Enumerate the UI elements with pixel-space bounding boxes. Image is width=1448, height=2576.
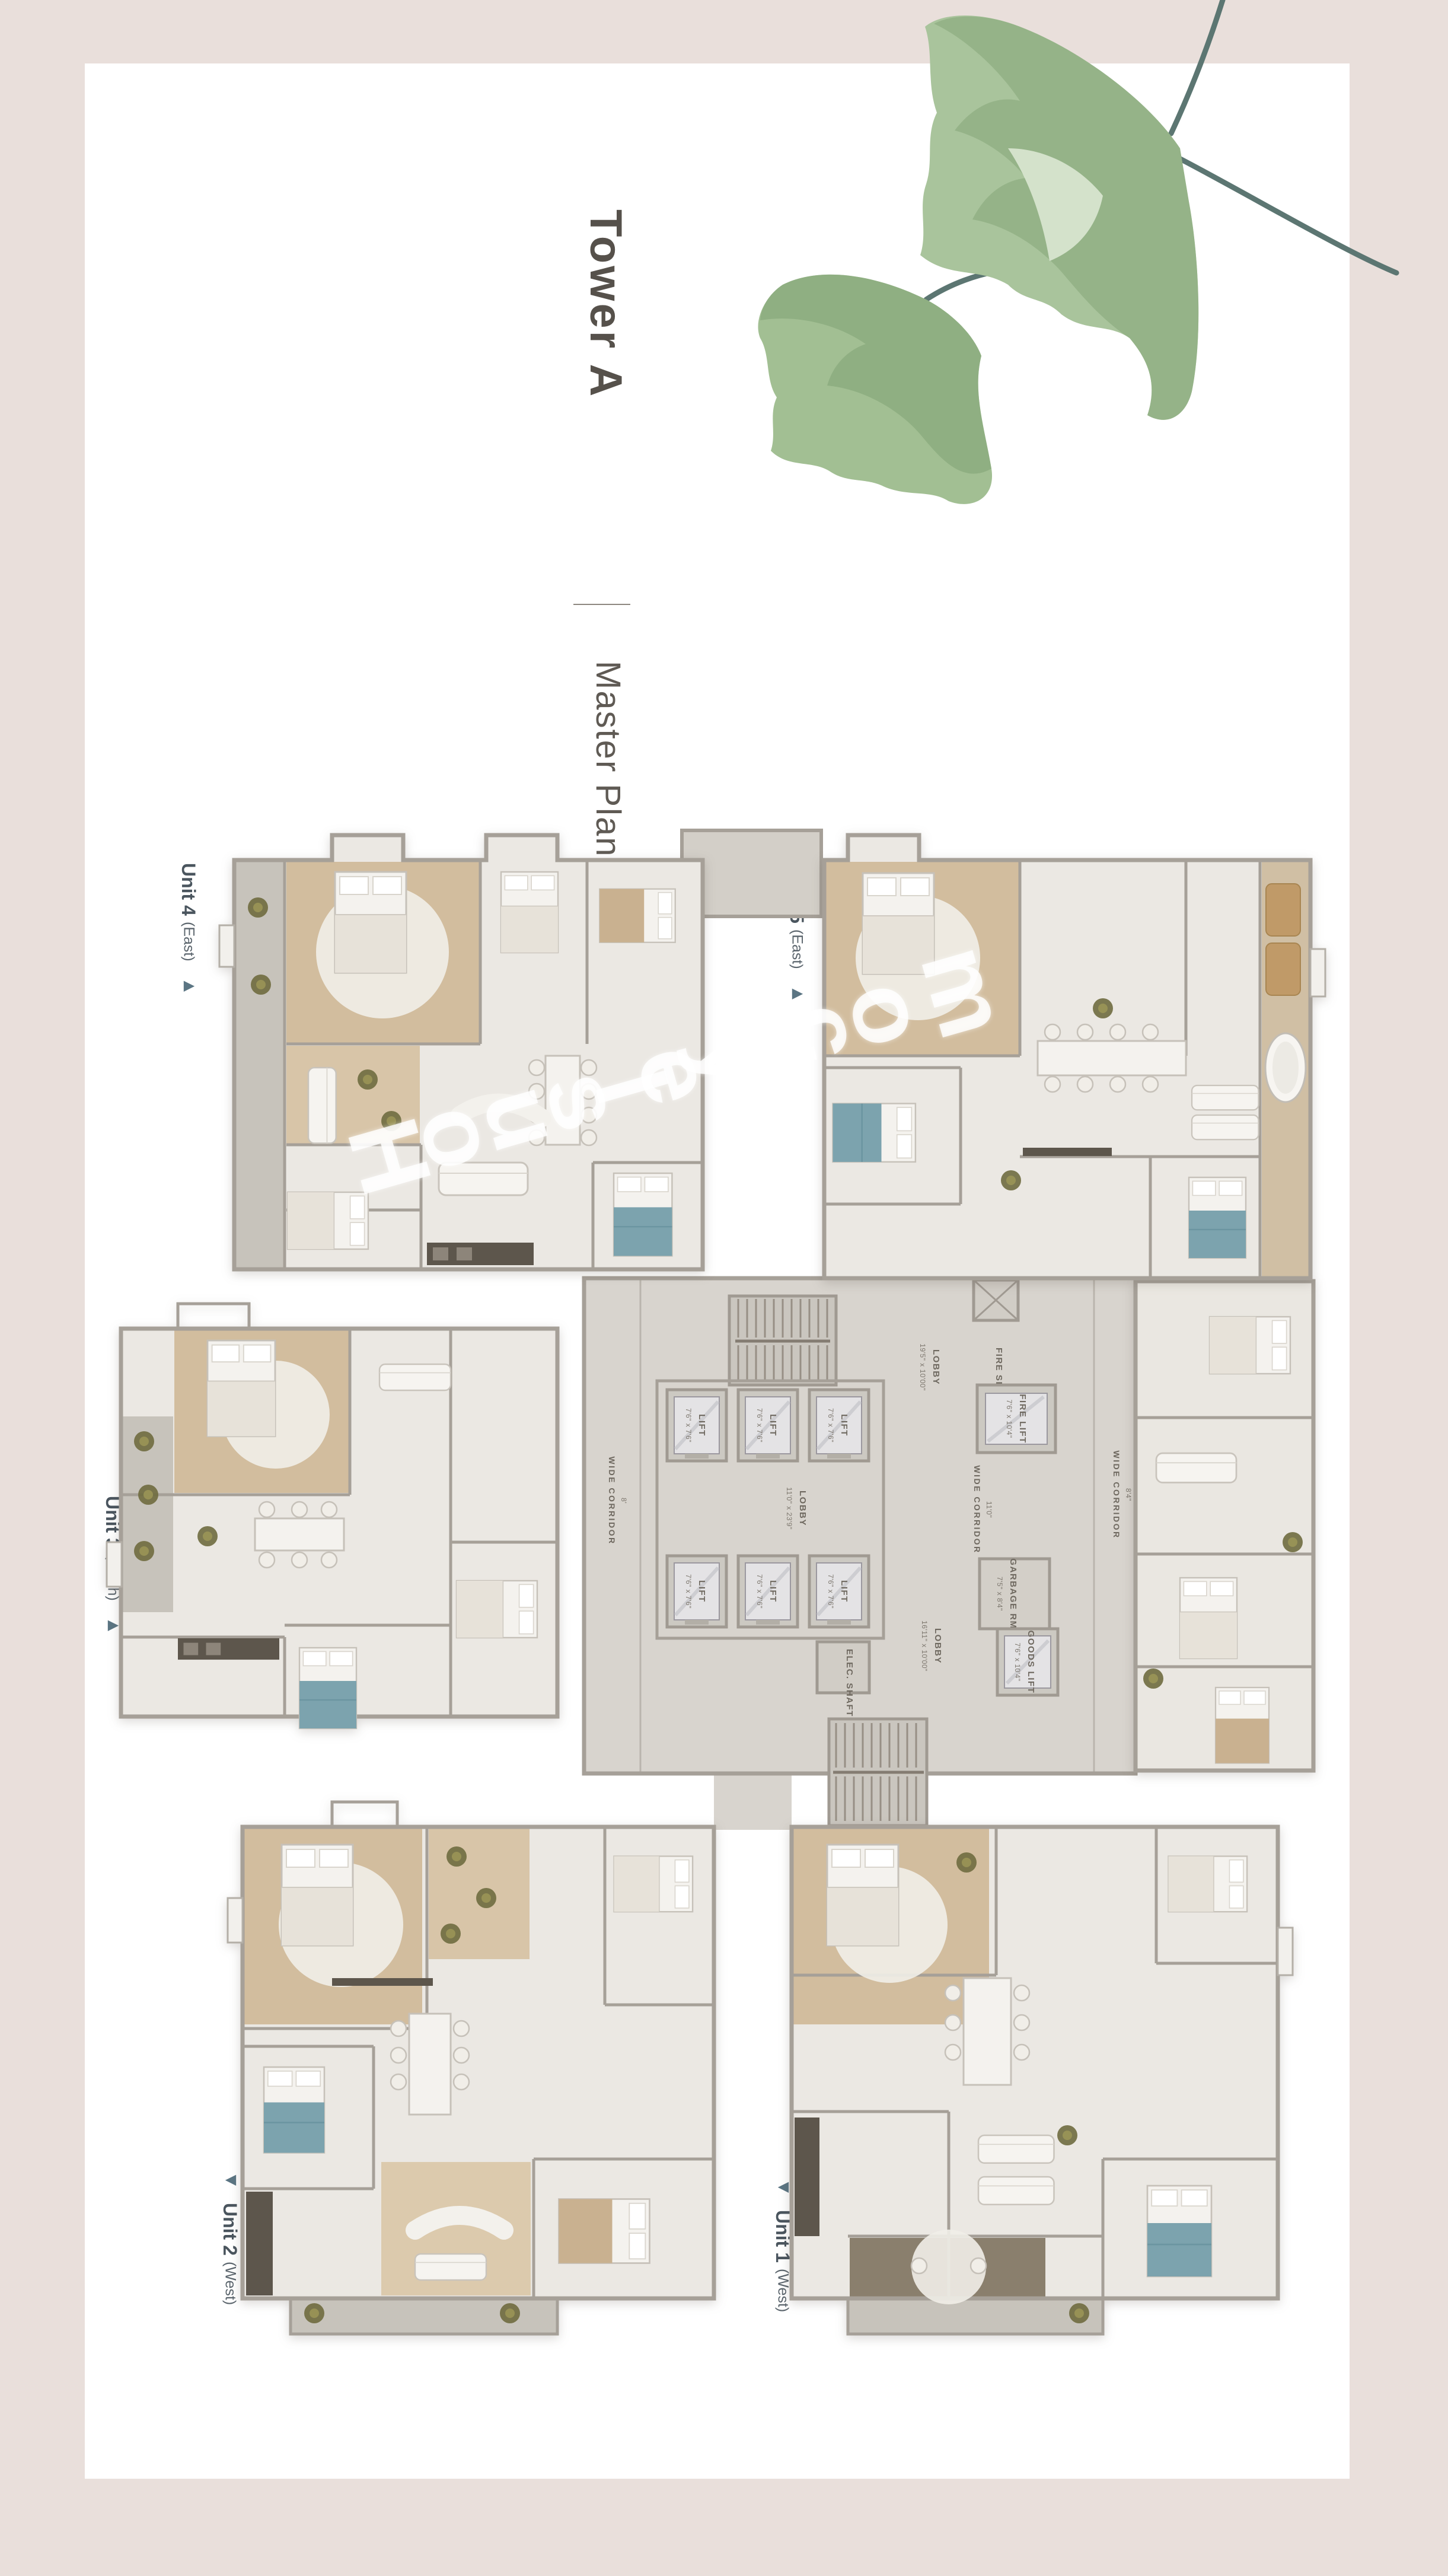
svg-text:LIFT: LIFT xyxy=(839,1414,849,1437)
svg-text:7'6" x 7'6": 7'6" x 7'6" xyxy=(684,1574,693,1609)
unit-4-plan xyxy=(219,835,703,1269)
unit-3-plan xyxy=(107,1304,557,1728)
stairs-bottom xyxy=(829,1719,927,1826)
stairs-top xyxy=(729,1296,836,1385)
svg-text:7'5" x 8'4": 7'5" x 8'4" xyxy=(996,1577,1004,1611)
lift-shaft xyxy=(667,1556,726,1627)
svg-text:11'0" x 23'9": 11'0" x 23'9" xyxy=(785,1487,793,1529)
lift-shaft xyxy=(809,1390,869,1461)
svg-text:LIFT: LIFT xyxy=(697,1580,707,1603)
unit-1-plan xyxy=(792,1827,1293,2334)
brochure-page: { "page": { "title": "Tower A", "subtitl… xyxy=(0,0,1448,2576)
svg-text:WIDE CORRIDOR: WIDE CORRIDOR xyxy=(1112,1450,1121,1539)
svg-text:FIRE LIFT: FIRE LIFT xyxy=(1018,1394,1028,1444)
right-edge-rooms xyxy=(1136,1281,1313,1771)
svg-text:LIFT: LIFT xyxy=(697,1414,707,1437)
svg-text:8'4": 8'4" xyxy=(1124,1488,1133,1501)
unit-2-plan xyxy=(228,1802,714,2334)
svg-text:16'11" x 10'00": 16'11" x 10'00" xyxy=(920,1620,929,1671)
svg-text:7'6" x 7'6": 7'6" x 7'6" xyxy=(827,1408,835,1443)
svg-text:7'6" x 10'4": 7'6" x 10'4" xyxy=(1013,1642,1022,1681)
garbage-room: GARBAGE RM 7'5" x 8'4" xyxy=(980,1558,1050,1629)
svg-text:LIFT: LIFT xyxy=(839,1580,849,1603)
svg-text:19'5" x 10'00": 19'5" x 10'00" xyxy=(918,1343,927,1391)
svg-text:7'6" x 7'6": 7'6" x 7'6" xyxy=(755,1408,764,1443)
fire-lift: FIRE LIFT 7'6" x 10'4" xyxy=(977,1385,1055,1453)
svg-text:LIFT: LIFT xyxy=(768,1580,778,1603)
svg-text:LOBBY: LOBBY xyxy=(933,1628,943,1664)
svg-text:WIDE CORRIDOR: WIDE CORRIDOR xyxy=(607,1456,617,1545)
svg-text:GARBAGE RM: GARBAGE RM xyxy=(1008,1558,1018,1629)
svg-text:LIFT: LIFT xyxy=(768,1414,778,1437)
elec-shaft-label: ELEC. SHAFT xyxy=(844,1649,854,1717)
svg-text:8': 8' xyxy=(620,1498,628,1504)
svg-text:7'6" x 7'6": 7'6" x 7'6" xyxy=(827,1574,835,1609)
svg-text:WIDE CORRIDOR: WIDE CORRIDOR xyxy=(972,1465,982,1553)
svg-text:7'6" x 7'6": 7'6" x 7'6" xyxy=(755,1574,764,1609)
svg-text:GOODS LIFT: GOODS LIFT xyxy=(1026,1631,1036,1694)
svg-text:7'6" x 7'6": 7'6" x 7'6" xyxy=(684,1408,693,1443)
lift-shaft xyxy=(809,1556,869,1627)
unit-5-plan xyxy=(824,835,1325,1278)
svg-text:LOBBY: LOBBY xyxy=(931,1349,941,1385)
lift-shaft xyxy=(738,1556,798,1627)
svg-text:11'0": 11'0" xyxy=(985,1501,993,1518)
floor-plan: LIFT 7'6" x 7'6" LIFT 7'6" x 7'6" LIFT 7… xyxy=(0,0,1448,2576)
lift-shaft xyxy=(667,1390,726,1461)
svg-text:LOBBY: LOBBY xyxy=(798,1491,808,1526)
lift-shaft xyxy=(738,1390,798,1461)
goods-lift: GOODS LIFT 7'6" x 10'4" xyxy=(997,1629,1058,1695)
svg-text:7'6" x 10'4": 7'6" x 10'4" xyxy=(1005,1399,1013,1438)
